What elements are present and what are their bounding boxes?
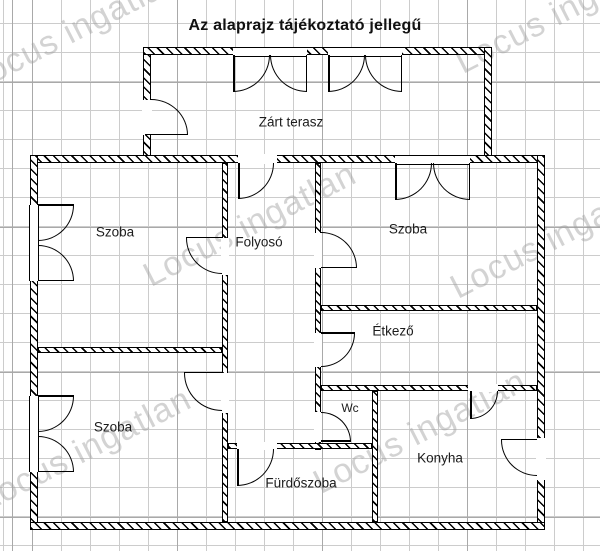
window-room-bottom-left bbox=[29, 396, 39, 472]
room-label-wc: Wc bbox=[341, 401, 358, 415]
door-arc-terrace bbox=[151, 99, 188, 135]
window-arc bbox=[38, 245, 74, 281]
wall-dining-kitchen bbox=[321, 385, 537, 391]
door-arc-kitchen-top bbox=[470, 391, 498, 419]
room-label-room-top-left: Szoba bbox=[96, 225, 134, 240]
window-arc bbox=[233, 55, 270, 92]
door-leaf bbox=[186, 237, 222, 239]
watermark-text: Locus ingatlan bbox=[449, 0, 600, 82]
door-arc-dining bbox=[321, 333, 355, 367]
door-arc-kitchen-right bbox=[501, 440, 537, 476]
wall-hallway-left bbox=[222, 163, 228, 522]
window-arc bbox=[395, 163, 432, 200]
window-arc bbox=[38, 205, 74, 241]
room-label-room-bottom-left: Szoba bbox=[94, 420, 132, 435]
wall-terrace-top bbox=[143, 47, 492, 55]
door-opening-room-bottom-left bbox=[221, 373, 229, 413]
window-arc bbox=[38, 436, 74, 472]
door-arc-room-top-left bbox=[186, 238, 222, 274]
door-opening-room-top-left bbox=[221, 238, 229, 275]
room-label-kitchen: Konyha bbox=[417, 451, 463, 466]
window-arc bbox=[365, 55, 402, 92]
window-arc bbox=[433, 163, 470, 200]
floor-plan: Locus ingatlan Locus ingatlan Locus inga… bbox=[0, 0, 600, 551]
door-arc-room-bottom-left bbox=[184, 373, 222, 411]
door-leaf bbox=[237, 449, 239, 486]
room-label-terrace: Zárt terasz bbox=[259, 115, 324, 130]
wall-room-dining bbox=[321, 305, 537, 311]
door-leaf bbox=[321, 267, 357, 269]
window-room-top-left bbox=[29, 205, 39, 281]
room-label-room-top-right: Szoba bbox=[389, 222, 427, 237]
door-leaf bbox=[321, 332, 355, 334]
wall-terrace-right bbox=[484, 47, 492, 163]
door-leaf bbox=[501, 439, 537, 441]
room-label-hallway: Folyosó bbox=[235, 235, 282, 250]
wall-bathroom-kitchen bbox=[372, 391, 378, 522]
plan-title: Az alaprajz tájékoztató jellegű bbox=[189, 17, 422, 35]
door-arc-wc bbox=[321, 412, 351, 442]
door-leaf bbox=[321, 440, 351, 442]
room-label-dining: Étkező bbox=[372, 324, 413, 339]
wall-main-bottom bbox=[30, 522, 545, 530]
window-arc bbox=[38, 396, 74, 432]
door-leaf bbox=[184, 372, 222, 374]
wall-between-left-rooms bbox=[38, 347, 222, 353]
door-leaf bbox=[238, 163, 240, 199]
door-opening-kitchen-right bbox=[536, 438, 546, 480]
room-label-bathroom: Fürdőszoba bbox=[265, 476, 336, 491]
door-arc-hallway-entry bbox=[238, 163, 274, 199]
door-arc-room-top-right bbox=[321, 232, 357, 268]
door-leaf bbox=[145, 134, 188, 136]
window-arc bbox=[270, 55, 307, 92]
door-leaf bbox=[470, 391, 472, 419]
window-arc bbox=[328, 55, 365, 92]
